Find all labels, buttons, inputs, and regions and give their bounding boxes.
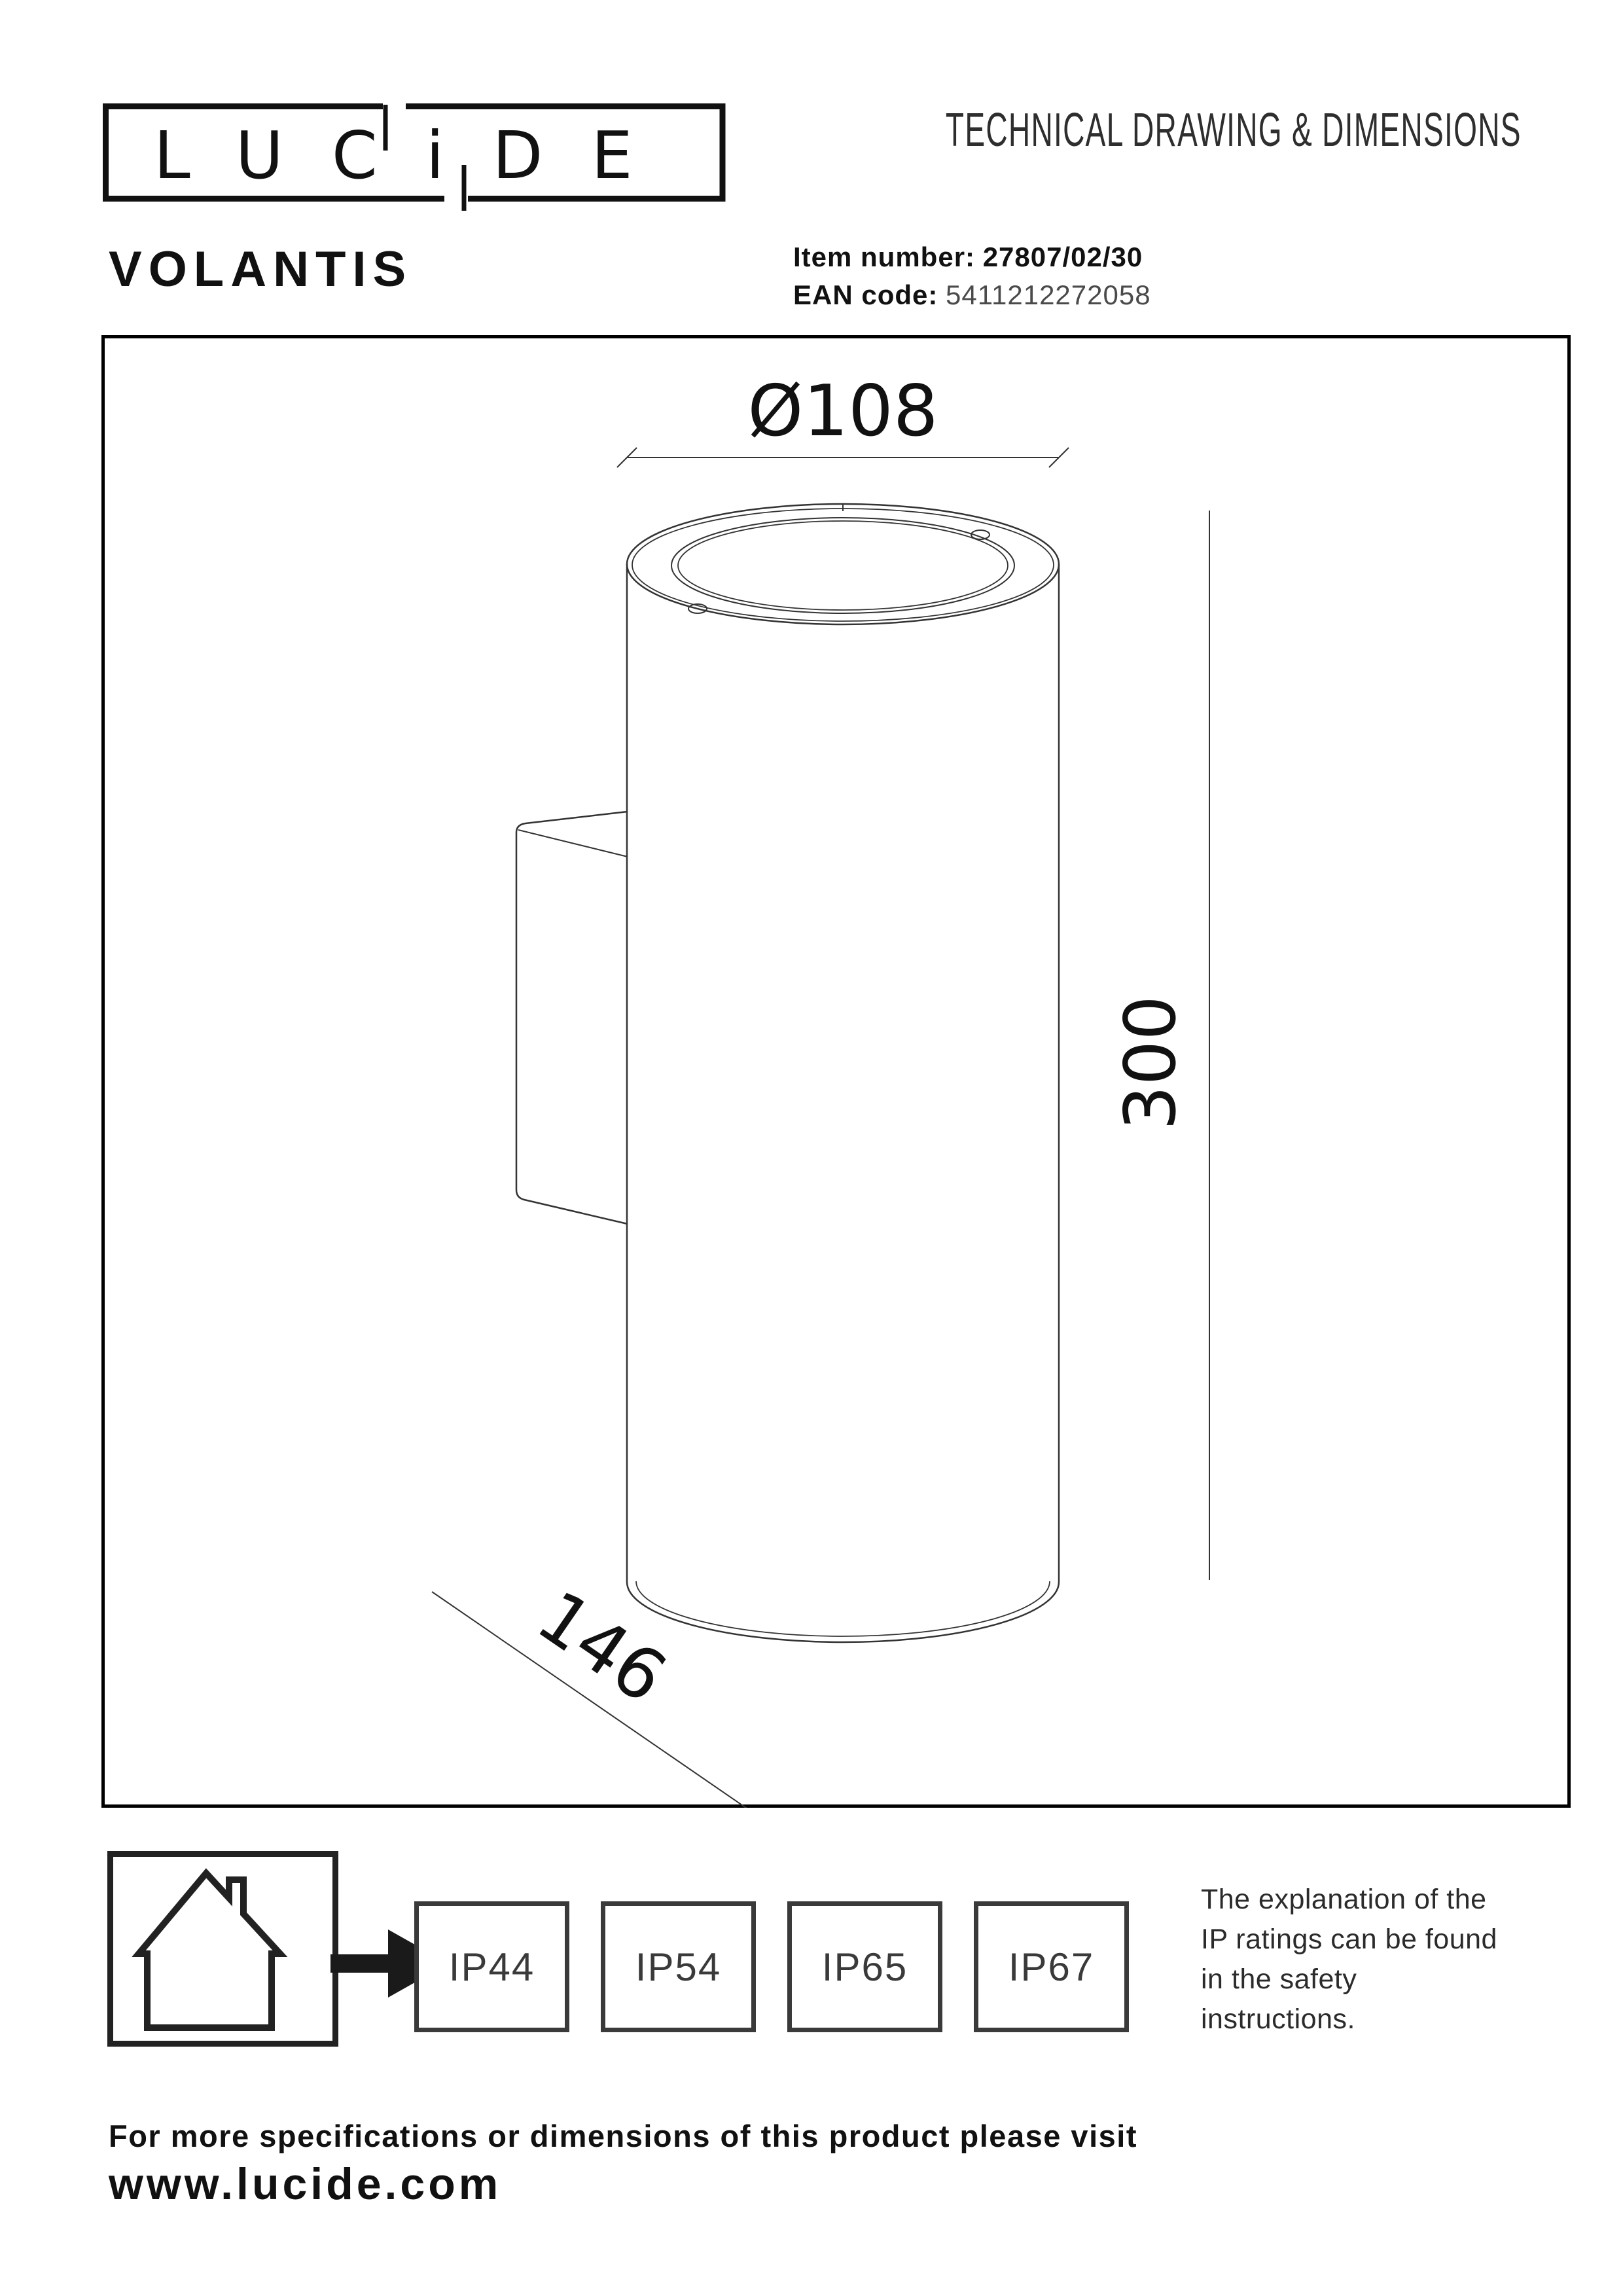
cylinder-bottom-arc xyxy=(627,1582,1059,1642)
ip-rating-badge-ip65: IP65 xyxy=(787,1901,942,2032)
footer-text: For more specifications or dimensions of… xyxy=(109,2118,1137,2154)
ip-note-line: IP ratings can be found xyxy=(1201,1920,1497,1960)
ip-rating-badge-ip44: IP44 xyxy=(414,1901,569,2032)
lucide-logo: LUCiDE xyxy=(103,102,726,215)
ean-code-label: EAN code: xyxy=(793,279,938,310)
ip-rating-badge-ip67: IP67 xyxy=(974,1901,1129,2032)
house-icon xyxy=(113,1857,332,2041)
ip-note-line: in the safety xyxy=(1201,1960,1497,2000)
technical-drawing: Ø108 300 146 xyxy=(101,335,1571,1808)
ip-rating-badge-ip54: IP54 xyxy=(601,1901,756,2032)
ip-note-line: The explanation of the xyxy=(1201,1880,1497,1920)
dim-height-label: 300 xyxy=(1110,996,1192,1130)
cylinder-top-face xyxy=(627,504,1059,624)
item-number-value: 27807/02/30 xyxy=(983,242,1143,272)
cylinder-body xyxy=(627,564,1059,1642)
ean-code-row: EAN code: 5411212272058 xyxy=(793,276,1151,314)
item-number-label: Item number: xyxy=(793,242,975,272)
logo-wordmark: LUCiDE xyxy=(154,117,681,194)
outdoor-use-box xyxy=(107,1851,338,2047)
spec-sheet-page: LUCiDE TECHNICAL DRAWING & DIMENSIONS VO… xyxy=(0,0,1623,2296)
item-number-row: Item number: 27807/02/30 xyxy=(793,238,1151,276)
item-info-block: Item number: 27807/02/30 EAN code: 54112… xyxy=(793,238,1151,314)
ip-ratings-note: The explanation of the IP ratings can be… xyxy=(1201,1880,1497,2039)
dim-width-label: 146 xyxy=(523,1575,681,1719)
dim-diameter-label: Ø108 xyxy=(747,370,938,452)
website-link[interactable]: www.lucide.com xyxy=(109,2159,501,2210)
ean-code-value: 5411212272058 xyxy=(946,279,1151,310)
ip-note-line: instructions. xyxy=(1201,2000,1497,2039)
doc-title: TECHNICAL DRAWING & DIMENSIONS xyxy=(946,103,1522,157)
wall-bracket xyxy=(516,812,628,1224)
product-name: VOLANTIS xyxy=(109,241,412,298)
